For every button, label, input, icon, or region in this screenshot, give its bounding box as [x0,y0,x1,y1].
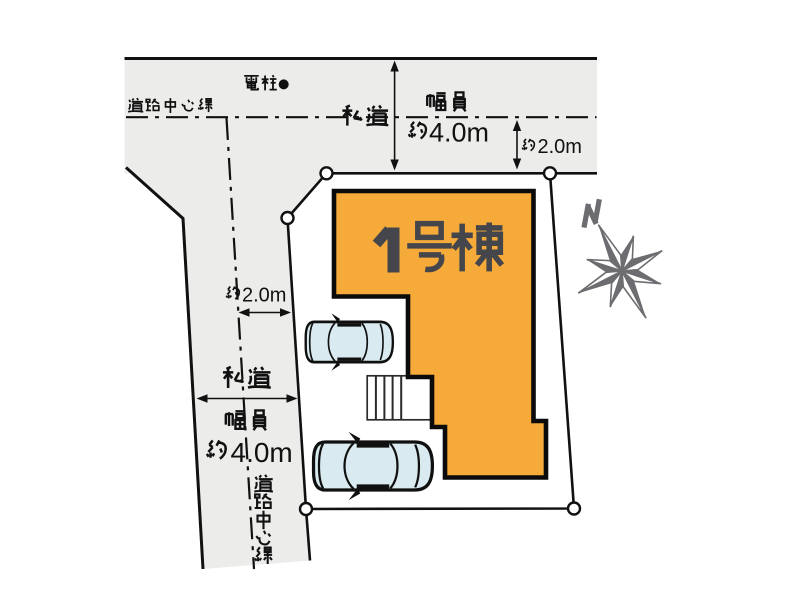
svg-text:4.0m: 4.0m [231,437,293,468]
svg-text:2.0m: 2.0m [242,285,286,307]
svg-text:4.0m: 4.0m [429,118,489,148]
svg-text:2.0m: 2.0m [538,136,582,158]
